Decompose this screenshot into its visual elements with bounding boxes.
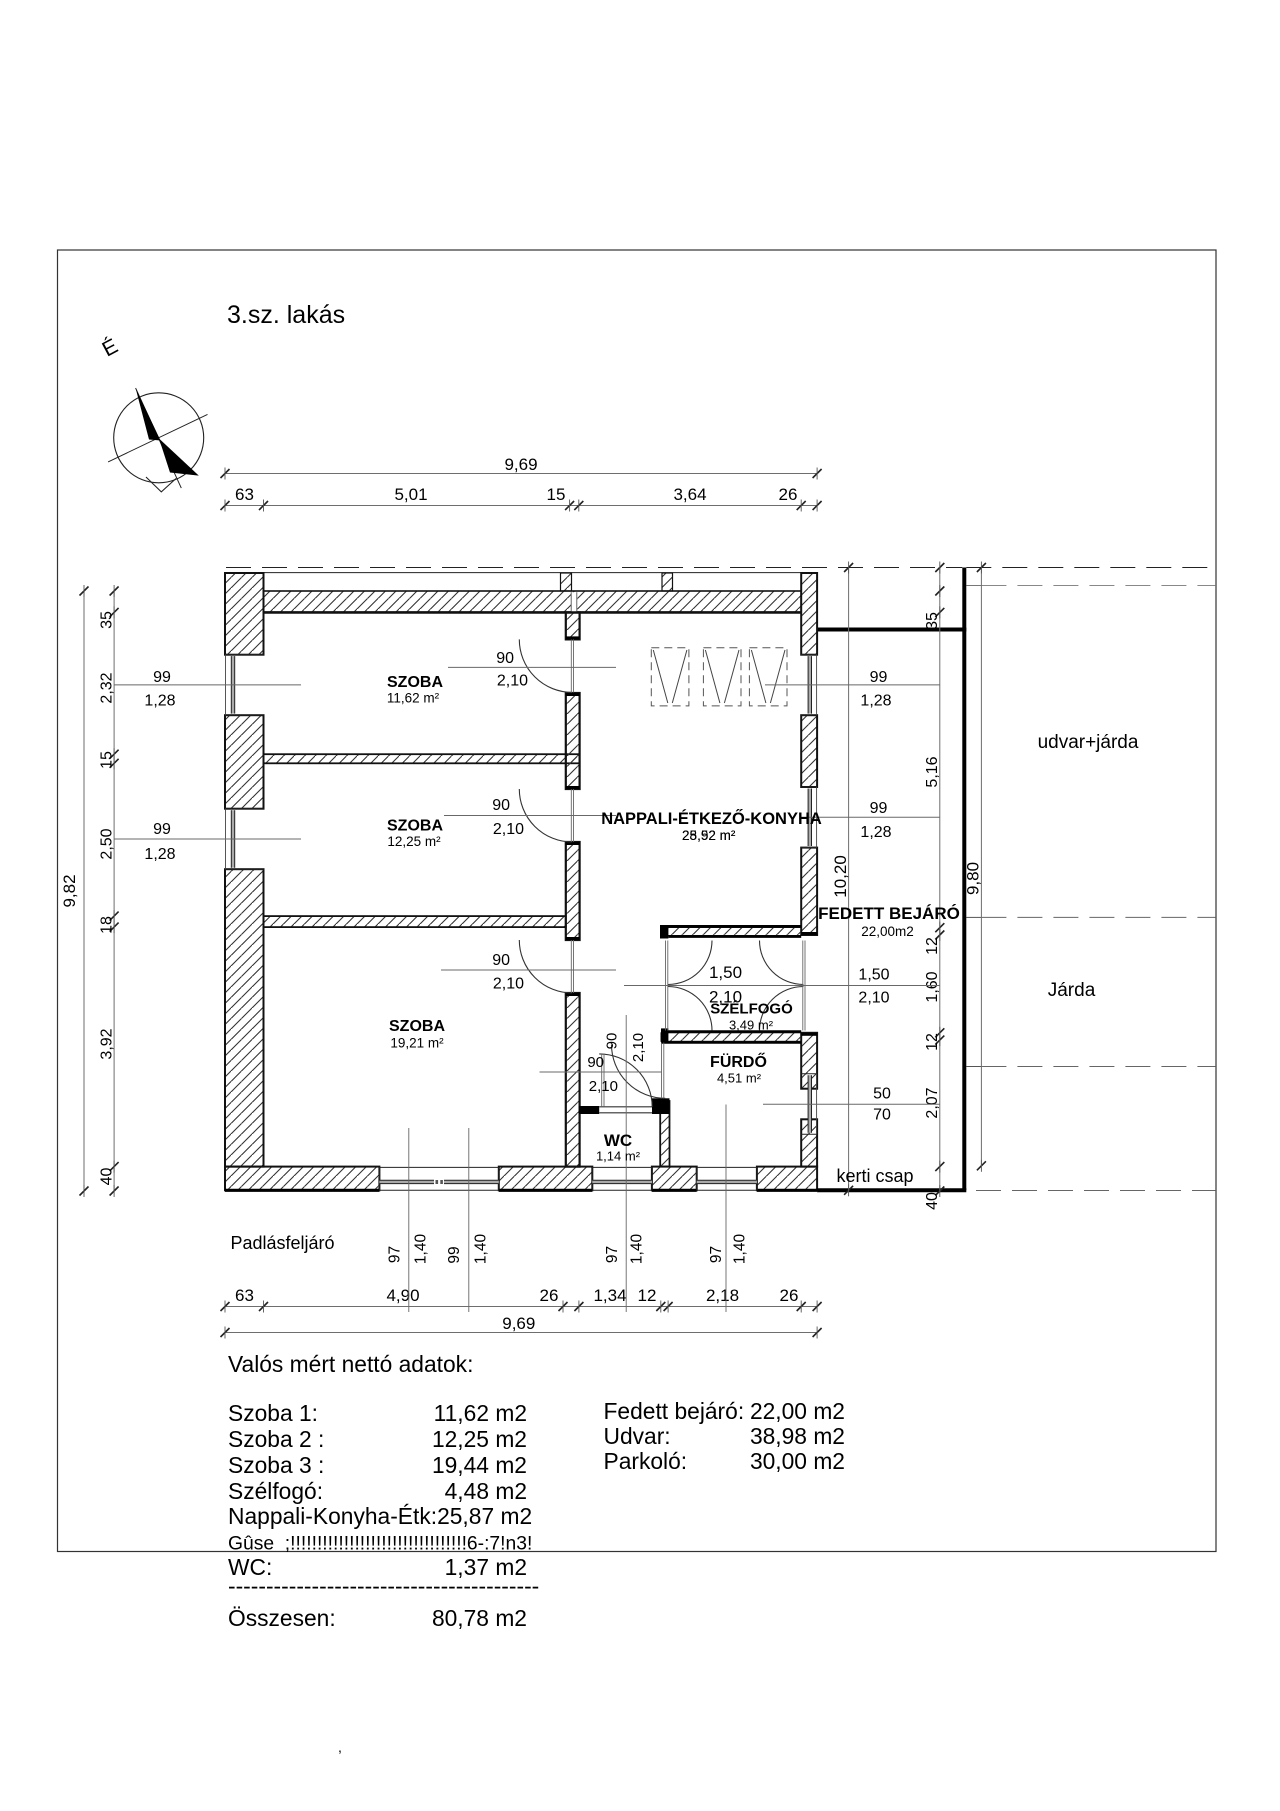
svg-text:26: 26 xyxy=(540,1286,559,1305)
svg-text:12: 12 xyxy=(638,1286,657,1305)
svg-text:4,51 m²: 4,51 m² xyxy=(717,1071,762,1086)
svg-text:2,32: 2,32 xyxy=(99,672,116,703)
svg-text:3,49 m²: 3,49 m² xyxy=(729,1018,774,1033)
svg-text:40: 40 xyxy=(99,1168,116,1186)
svg-text:1,28: 1,28 xyxy=(144,693,175,710)
svg-text:22,00 m2: 22,00 m2 xyxy=(750,1398,845,1424)
svg-text:1,40: 1,40 xyxy=(473,1234,490,1265)
svg-text:1,14 m²: 1,14 m² xyxy=(596,1149,641,1164)
svg-text:9,69: 9,69 xyxy=(504,455,537,474)
svg-text:kerti csap: kerti csap xyxy=(836,1166,913,1186)
svg-text:2,10: 2,10 xyxy=(497,673,528,690)
svg-text:12,25 m2: 12,25 m2 xyxy=(432,1426,527,1452)
svg-text:FEDETT BEJÁRÓ: FEDETT BEJÁRÓ xyxy=(818,904,960,923)
svg-text:Padlásfeljáró: Padlásfeljáró xyxy=(231,1233,335,1253)
svg-text:99: 99 xyxy=(153,669,171,686)
svg-text:2,07: 2,07 xyxy=(924,1087,941,1118)
svg-text:1,28: 1,28 xyxy=(144,846,175,863)
svg-text:2,10: 2,10 xyxy=(493,976,524,993)
svg-text:3,92: 3,92 xyxy=(99,1028,116,1059)
svg-text:WC: WC xyxy=(604,1131,632,1150)
svg-text:19,44 m2: 19,44 m2 xyxy=(432,1452,527,1478)
svg-text:------------------------------: ----------------------------------------… xyxy=(228,1573,539,1599)
svg-text:2,10: 2,10 xyxy=(630,1033,647,1062)
svg-text:70: 70 xyxy=(873,1107,891,1124)
svg-text:Parkoló:: Parkoló: xyxy=(604,1448,688,1474)
svg-text:90: 90 xyxy=(492,952,510,969)
svg-text:90: 90 xyxy=(587,1054,604,1071)
svg-text:90: 90 xyxy=(492,797,510,814)
svg-text:9,82: 9,82 xyxy=(60,874,79,907)
svg-text:63: 63 xyxy=(235,485,254,504)
svg-text:99: 99 xyxy=(446,1246,463,1263)
svg-text:1,40: 1,40 xyxy=(629,1234,646,1265)
svg-text:15: 15 xyxy=(99,751,116,769)
svg-text:12: 12 xyxy=(924,1033,941,1051)
svg-text:1,40: 1,40 xyxy=(732,1234,749,1265)
svg-text:Összesen:: Összesen: xyxy=(228,1605,336,1631)
svg-text:1,50: 1,50 xyxy=(709,963,742,982)
svg-text:SZÉLFOGÓ: SZÉLFOGÓ xyxy=(710,1000,793,1018)
svg-text:50: 50 xyxy=(873,1086,891,1103)
svg-text:1,50: 1,50 xyxy=(858,967,889,984)
svg-text:2,10: 2,10 xyxy=(493,821,524,838)
svg-text:1,28: 1,28 xyxy=(860,693,891,710)
svg-text:2,18: 2,18 xyxy=(706,1286,739,1305)
svg-text:97: 97 xyxy=(708,1246,725,1263)
svg-text:Udvar:: Udvar: xyxy=(604,1423,671,1449)
svg-text:2,50: 2,50 xyxy=(99,828,116,859)
svg-text:11,62 m²: 11,62 m² xyxy=(387,691,440,706)
svg-text:5,01: 5,01 xyxy=(394,485,427,504)
svg-text:97: 97 xyxy=(387,1246,404,1263)
svg-text:1,34: 1,34 xyxy=(593,1286,626,1305)
svg-text:1,28: 1,28 xyxy=(860,824,891,841)
svg-text:26: 26 xyxy=(779,485,798,504)
svg-text:Szoba 1:: Szoba 1: xyxy=(228,1400,318,1426)
svg-text:40: 40 xyxy=(924,1192,941,1210)
svg-text:12,25 m²: 12,25 m² xyxy=(387,834,441,849)
svg-text:9,69: 9,69 xyxy=(502,1314,535,1333)
svg-text:35: 35 xyxy=(99,611,116,629)
svg-text:1,60: 1,60 xyxy=(924,971,941,1002)
svg-text:12: 12 xyxy=(924,937,941,955)
svg-text:Szoba 3 :: Szoba 3 : xyxy=(228,1452,324,1478)
svg-text:90: 90 xyxy=(604,1033,621,1050)
svg-text:9,80: 9,80 xyxy=(964,862,983,895)
svg-text:1,40: 1,40 xyxy=(413,1234,430,1265)
svg-text:Szoba 2 :: Szoba 2 : xyxy=(228,1426,324,1452)
svg-text:19,21 m²: 19,21 m² xyxy=(390,1036,444,1051)
svg-text:SZOBA: SZOBA xyxy=(387,674,443,691)
svg-text:30,00 m2: 30,00 m2 xyxy=(750,1448,845,1474)
svg-text:97: 97 xyxy=(604,1246,621,1263)
svg-text:4,90: 4,90 xyxy=(386,1286,419,1305)
svg-text:11,62 m2: 11,62 m2 xyxy=(434,1400,527,1426)
svg-text:99: 99 xyxy=(153,821,171,838)
svg-text:Szélfogó:: Szélfogó: xyxy=(228,1478,323,1504)
svg-text:80,78 m2: 80,78 m2 xyxy=(432,1605,527,1631)
svg-text:26: 26 xyxy=(780,1286,799,1305)
svg-text:SZOBA: SZOBA xyxy=(387,818,443,835)
svg-text:2,10: 2,10 xyxy=(858,990,889,1007)
svg-text:3,64: 3,64 xyxy=(673,485,706,504)
svg-text:NAPPALI-ÉTKEZŐ-KONYHA: NAPPALI-ÉTKEZŐ-KONYHA xyxy=(601,809,822,828)
svg-text:SZOBA: SZOBA xyxy=(389,1018,445,1035)
svg-text:18: 18 xyxy=(99,916,116,934)
svg-text:Nappali-Konyha-Étk:25,87 m2: Nappali-Konyha-Étk:25,87 m2 xyxy=(228,1503,532,1529)
svg-text:Fedett bejáró:: Fedett bejáró: xyxy=(604,1398,745,1424)
svg-text:38,98 m2: 38,98 m2 xyxy=(750,1423,845,1449)
svg-text:Járda: Járda xyxy=(1048,980,1096,1001)
svg-text:Gûse ;!!!!!!!!!!!!!!!!!!!!!!!: Gûse ;!!!!!!!!!!!!!!!!!!!!!!!!!!!!!!!!!6… xyxy=(228,1534,532,1555)
svg-text:22,00m2: 22,00m2 xyxy=(861,924,914,939)
svg-text:Valós mért nettó adatok:: Valós mért nettó adatok: xyxy=(228,1351,473,1377)
svg-text:4,48 m2: 4,48 m2 xyxy=(445,1478,527,1504)
svg-text:2,10: 2,10 xyxy=(589,1078,618,1095)
svg-text:99: 99 xyxy=(870,669,888,686)
svg-text:90: 90 xyxy=(496,650,514,667)
svg-text:5,16: 5,16 xyxy=(924,756,941,787)
svg-text:udvar+járda: udvar+járda xyxy=(1038,732,1139,753)
svg-text:3.sz. lakás: 3.sz. lakás xyxy=(227,301,345,329)
svg-text:FÜRDŐ: FÜRDŐ xyxy=(710,1052,767,1071)
svg-text:35: 35 xyxy=(924,612,941,630)
svg-text:63: 63 xyxy=(235,1286,254,1305)
svg-text:99: 99 xyxy=(870,800,888,817)
svg-text:10,20: 10,20 xyxy=(831,855,850,898)
svg-text:15: 15 xyxy=(547,485,566,504)
svg-text:,: , xyxy=(338,1739,342,1755)
svg-text:28,52 m²: 28,52 m² xyxy=(682,828,736,843)
